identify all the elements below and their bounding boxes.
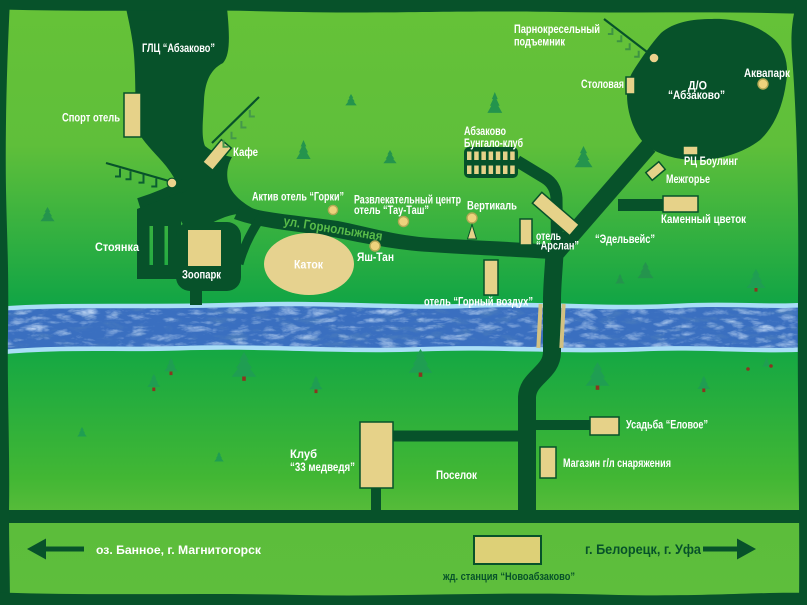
svg-text:Каменный цветок: Каменный цветок xyxy=(661,214,746,226)
svg-text:Бунгало-клуб: Бунгало-клуб xyxy=(464,138,523,150)
svg-text:Яш-Тан: Яш-Тан xyxy=(357,252,394,264)
svg-text:“Абзаково”: “Абзаково” xyxy=(668,90,725,102)
svg-text:подъемник: подъемник xyxy=(514,37,565,49)
svg-text:отель “Горный воздух”: отель “Горный воздух” xyxy=(424,297,533,309)
svg-text:оз. Банное, г. Магнитогорск: оз. Банное, г. Магнитогорск xyxy=(96,545,261,557)
svg-text:“Арслан”: “Арслан” xyxy=(536,241,579,253)
svg-text:Каток: Каток xyxy=(294,260,323,272)
svg-text:Актив отель “Горки”: Актив отель “Горки” xyxy=(252,192,344,204)
svg-text:г. Белорецк, г. Уфа: г. Белорецк, г. Уфа xyxy=(585,541,701,557)
svg-text:Стоянка: Стоянка xyxy=(95,242,140,254)
svg-text:Столовая: Столовая xyxy=(581,79,624,91)
svg-text:отель “Тау-Таш”: отель “Тау-Таш” xyxy=(354,205,429,217)
svg-text:Поселок: Поселок xyxy=(436,470,477,482)
svg-text:Межгорье: Межгорье xyxy=(666,174,710,186)
svg-text:Вертикаль: Вертикаль xyxy=(467,201,517,213)
svg-text:Магазин г/л снаряжения: Магазин г/л снаряжения xyxy=(563,458,671,470)
svg-text:Кафе: Кафе xyxy=(233,147,258,159)
svg-text:Аквапарк: Аквапарк xyxy=(744,68,790,80)
svg-text:Парнокресельный: Парнокресельный xyxy=(514,24,600,36)
svg-text:Спорт отель: Спорт отель xyxy=(62,113,120,125)
svg-text:Усадьба “Еловое”: Усадьба “Еловое” xyxy=(626,420,708,432)
svg-text:“Эдельвейс”: “Эдельвейс” xyxy=(595,234,655,246)
svg-text:Зоопарк: Зоопарк xyxy=(182,270,221,282)
svg-text:“33 медведя”: “33 медведя” xyxy=(290,462,355,474)
svg-text:РЦ Боулинг: РЦ Боулинг xyxy=(684,156,738,168)
svg-text:Клуб: Клуб xyxy=(290,449,317,461)
svg-text:жд. станция “Новоабзаково”: жд. станция “Новоабзаково” xyxy=(442,571,575,583)
svg-text:ГЛЦ “Абзаково”: ГЛЦ “Абзаково” xyxy=(142,43,215,55)
svg-text:Абзаково: Абзаково xyxy=(464,126,506,138)
